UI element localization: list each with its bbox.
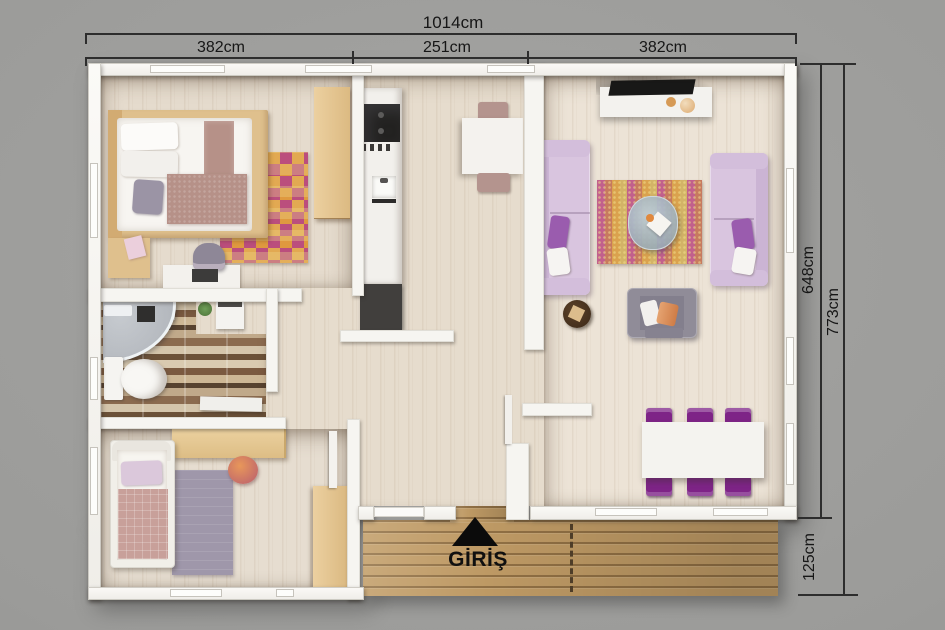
wall-kitchen-bottom — [340, 330, 454, 342]
wall-kitchen-living — [524, 63, 544, 350]
sofa-right-white-pillow — [731, 246, 757, 275]
kitchen-counter-slot — [372, 199, 396, 203]
dim-tick-seg-2 — [527, 51, 529, 64]
bedroom2-blanket — [118, 489, 168, 559]
wall-bathroom-bedroom2 — [88, 417, 286, 429]
tv-deco-large — [680, 98, 695, 113]
window-left-bedroom1 — [90, 163, 98, 238]
dim-tick-seg-1 — [352, 51, 354, 64]
kitchen-cooktop — [362, 104, 400, 142]
dim-line-top-segments — [85, 57, 797, 59]
dim-line-right-inner — [820, 64, 822, 518]
sink-faucet — [218, 302, 242, 307]
dim-tick-right-bottom-inner — [798, 594, 832, 596]
coffee-table-fruit — [646, 214, 654, 222]
bedroom1-laptop — [192, 269, 218, 282]
bedroom1-pillow-top — [121, 122, 179, 151]
wall-bathroom-hall — [266, 288, 278, 392]
floor-plan-scene: GİRİŞ 1014cm 382cm 251cm 382cm 648cm 773… — [0, 0, 945, 630]
window-left-bathroom — [90, 357, 98, 400]
dim-label-seg-left: 382cm — [171, 39, 271, 57]
shower-fixture — [137, 306, 155, 322]
dim-line-right-total — [843, 64, 845, 596]
dining-chair-bottom-3 — [725, 476, 751, 496]
dim-label-right-total: 773cm — [825, 288, 843, 336]
dim-tick-right-top — [800, 63, 856, 65]
window-right-dining — [786, 423, 794, 485]
dim-hook-top-total-right — [795, 33, 797, 44]
cooktop-burner-2 — [378, 128, 384, 134]
bedroom2-pillow — [121, 460, 163, 485]
bathroom-bench — [200, 396, 262, 412]
window-top-bedroom1-2 — [305, 65, 372, 73]
entrance-label: GİRİŞ — [418, 548, 538, 572]
deck-divider-dashed-line — [570, 524, 573, 592]
tv-screen — [608, 79, 695, 95]
wall-dining-top — [522, 403, 592, 416]
dining-chair-bottom-2 — [687, 476, 713, 496]
sofa-right-purple-pillow — [731, 218, 755, 251]
wall-dining-left — [506, 443, 529, 520]
dim-hook-top-total-left — [85, 33, 87, 44]
dim-tick-right-bottom-total — [831, 594, 858, 596]
dining-table — [642, 422, 764, 478]
bedroom1-chair — [193, 243, 225, 270]
toilet-bowl — [121, 359, 167, 399]
window-bottom-dining-1 — [595, 508, 657, 516]
bedroom2-wardrobe — [313, 486, 350, 587]
dim-label-seg-center: 251cm — [397, 39, 497, 57]
bedroom2-open-door-leaf — [329, 431, 337, 488]
bedroom1-blanket — [167, 174, 247, 224]
sofa-left-seam — [550, 212, 590, 214]
window-left-bedroom2 — [90, 447, 98, 515]
dim-hook-seg-left — [85, 57, 87, 66]
cooktop-burner-1 — [378, 112, 384, 118]
living-open-door-leaf — [505, 395, 512, 444]
wall-outer-left — [88, 63, 101, 600]
dim-label-seg-right: 382cm — [613, 39, 713, 57]
bedroom1-blanket-fold — [204, 121, 234, 177]
kitchen-chair-bottom — [477, 173, 510, 192]
kitchen-dark-cabinet — [360, 284, 402, 330]
wall-hall-bottom-left — [358, 506, 374, 520]
dim-hook-seg-right — [795, 57, 797, 66]
sofa-left-white-pillow — [546, 247, 571, 277]
bedroom1-gray-cushion — [132, 179, 164, 215]
dining-chair-bottom-1 — [646, 476, 672, 496]
entrance-door-sill — [374, 507, 424, 517]
window-bottom-dining-2 — [713, 508, 768, 516]
bathroom-plant — [198, 302, 212, 316]
window-top-bedroom1 — [150, 65, 225, 73]
armchair-front-bar — [645, 328, 683, 338]
bedroom2-desk — [172, 428, 286, 458]
dim-label-right-inner: 648cm — [800, 246, 818, 294]
dim-tick-right-deck — [798, 517, 832, 519]
kitchen-knobs — [362, 144, 390, 151]
wall-outer-bottom-left — [88, 587, 364, 600]
sofa-left-armrest-top — [537, 140, 590, 157]
window-right-living-2 — [786, 337, 794, 385]
dim-label-top-total: 1014cm — [403, 13, 503, 33]
window-bottom-hall — [276, 589, 294, 597]
sofa-left-armrest-bottom — [537, 278, 590, 295]
wall-bedroom1-kitchen — [352, 63, 364, 296]
dim-line-top-total — [85, 33, 797, 35]
entrance-arrow-icon — [452, 517, 498, 546]
bedroom2-rug — [172, 470, 233, 575]
tv-deco-small — [666, 97, 676, 107]
sofa-right-armrest-top — [710, 153, 768, 169]
bedroom1-wardrobe — [314, 87, 350, 219]
window-right-living-1 — [786, 168, 794, 253]
kitchen-table — [462, 118, 523, 174]
shower-head-arm — [104, 305, 132, 316]
dim-label-deck-depth: 125cm — [801, 533, 819, 581]
bedroom2-pouf — [228, 456, 258, 484]
window-top-kitchen — [487, 65, 535, 73]
kitchen-faucet — [380, 178, 388, 183]
window-bottom-bedroom2 — [170, 589, 222, 597]
